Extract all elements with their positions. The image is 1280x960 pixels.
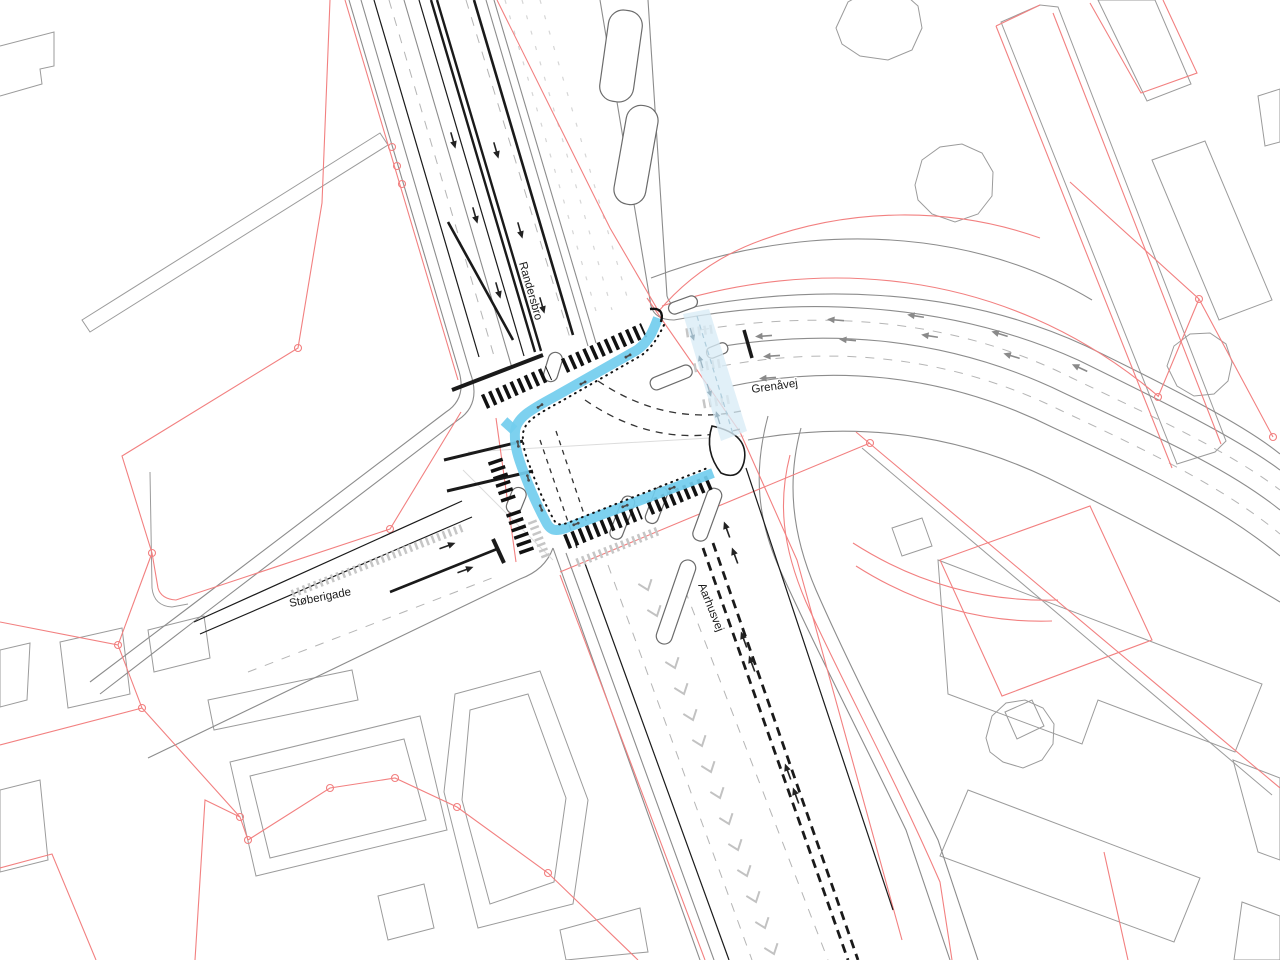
building: [1258, 89, 1280, 146]
lane-divider: [389, 0, 494, 356]
lane-divider: [722, 356, 1280, 534]
building: [940, 790, 1200, 942]
lane-arrow-north: [729, 546, 741, 564]
building: [560, 908, 648, 960]
parcel-line: [647, 298, 902, 940]
lane-arrow-west: [827, 316, 845, 324]
building: [892, 518, 932, 556]
lane-divider: [700, 320, 1280, 490]
zebra-north: [484, 373, 549, 402]
lane-arrow-south: [448, 131, 459, 149]
lane-arrow-west: [921, 331, 939, 340]
building: [250, 739, 426, 858]
bus-lane-line: [390, 549, 497, 592]
parcel-line: [345, 0, 458, 380]
lane-line: [566, 553, 714, 960]
road-edge-grenaavej-outer: [648, 0, 1280, 454]
road-edge-randersbro-west: [90, 0, 461, 682]
lane-arrow-south: [515, 221, 526, 239]
road-markings-black: [194, 0, 893, 960]
pedestrian-crossing-band: [683, 309, 747, 441]
lane-line-black: [746, 468, 893, 910]
stop-bar: [744, 330, 752, 358]
bus-lane-line: [448, 222, 513, 340]
tree: [836, 0, 922, 60]
building: [444, 671, 588, 928]
lane-line-black: [583, 558, 729, 960]
building: [0, 32, 54, 96]
building: [1233, 760, 1280, 860]
lane-line: [712, 338, 1280, 510]
parcel-line: [0, 854, 96, 960]
tree: [915, 144, 993, 222]
lane-arrow-north: [721, 520, 733, 538]
building: [378, 884, 434, 940]
building: [0, 780, 48, 872]
road-edge-stoeberigade-south: [148, 548, 553, 758]
parcel-line: [1158, 299, 1199, 397]
driveway-edge: [862, 448, 1272, 795]
parcel-line: [0, 622, 142, 745]
building: [938, 560, 1262, 752]
parcel-line: [1090, 0, 1197, 93]
parcel-line: [856, 432, 1280, 788]
lane-arrow-west: [1070, 361, 1088, 374]
lane-arrow-west: [1002, 350, 1020, 361]
lane-divider: [248, 578, 492, 672]
lane-arrow-west: [763, 352, 780, 360]
building: [148, 616, 210, 672]
median-line: [431, 0, 535, 352]
lane-arrow-east: [438, 540, 456, 552]
lane-arrow-west: [755, 332, 772, 340]
building: [462, 694, 566, 904]
site-plan-canvas: Randersbro Grenåvej Aarhusvej Støberigad…: [0, 0, 1280, 960]
building: [1098, 0, 1191, 101]
tram-track-dashed: [713, 543, 858, 960]
tram-track-dashed: [703, 548, 848, 960]
tree: [986, 700, 1054, 768]
lane-line: [404, 0, 512, 368]
lane-line: [494, 0, 596, 343]
lane-line-black: [374, 0, 479, 357]
zebra-west: [513, 512, 528, 555]
island: [598, 8, 644, 104]
parcel-line: [122, 0, 461, 600]
building: [230, 716, 447, 876]
street-label-randersbro: Randersbro: [516, 261, 544, 322]
lane-arrow-south: [493, 281, 504, 299]
road-edge: [100, 0, 474, 694]
street-label-aarhusvej: Aarhusvej: [695, 582, 725, 634]
building: [1152, 141, 1272, 320]
parcel-line: [1104, 852, 1128, 960]
lane-arrow-west: [839, 336, 857, 344]
parcel-line: [1070, 182, 1273, 437]
lane-arrow-south: [491, 141, 502, 159]
island: [648, 363, 694, 392]
parcel-line: [142, 708, 240, 817]
island: [612, 103, 661, 207]
island: [654, 558, 698, 646]
road-edge-grenaavej: [600, 0, 1280, 470]
parcel-line: [118, 553, 152, 645]
parcel-line: [853, 543, 1058, 600]
plan-viewport: Randersbro Grenåvej Aarhusvej Støberigad…: [0, 0, 1280, 960]
parcel-corner: [150, 472, 188, 607]
building: [0, 643, 30, 707]
zebra-west: [495, 460, 510, 504]
parcel-line: [996, 5, 1040, 26]
cycle-route-stub: [504, 421, 514, 430]
parcel-line: [856, 566, 1052, 621]
street-label-grenaavej: Grenåvej: [751, 378, 799, 396]
texture-line: [522, 0, 612, 310]
parcel-line: [658, 215, 1040, 312]
building: [82, 133, 388, 332]
building: [208, 670, 358, 730]
building: [1234, 902, 1280, 960]
lane-divider: [685, 590, 828, 960]
lane-arrow-south: [470, 206, 481, 224]
